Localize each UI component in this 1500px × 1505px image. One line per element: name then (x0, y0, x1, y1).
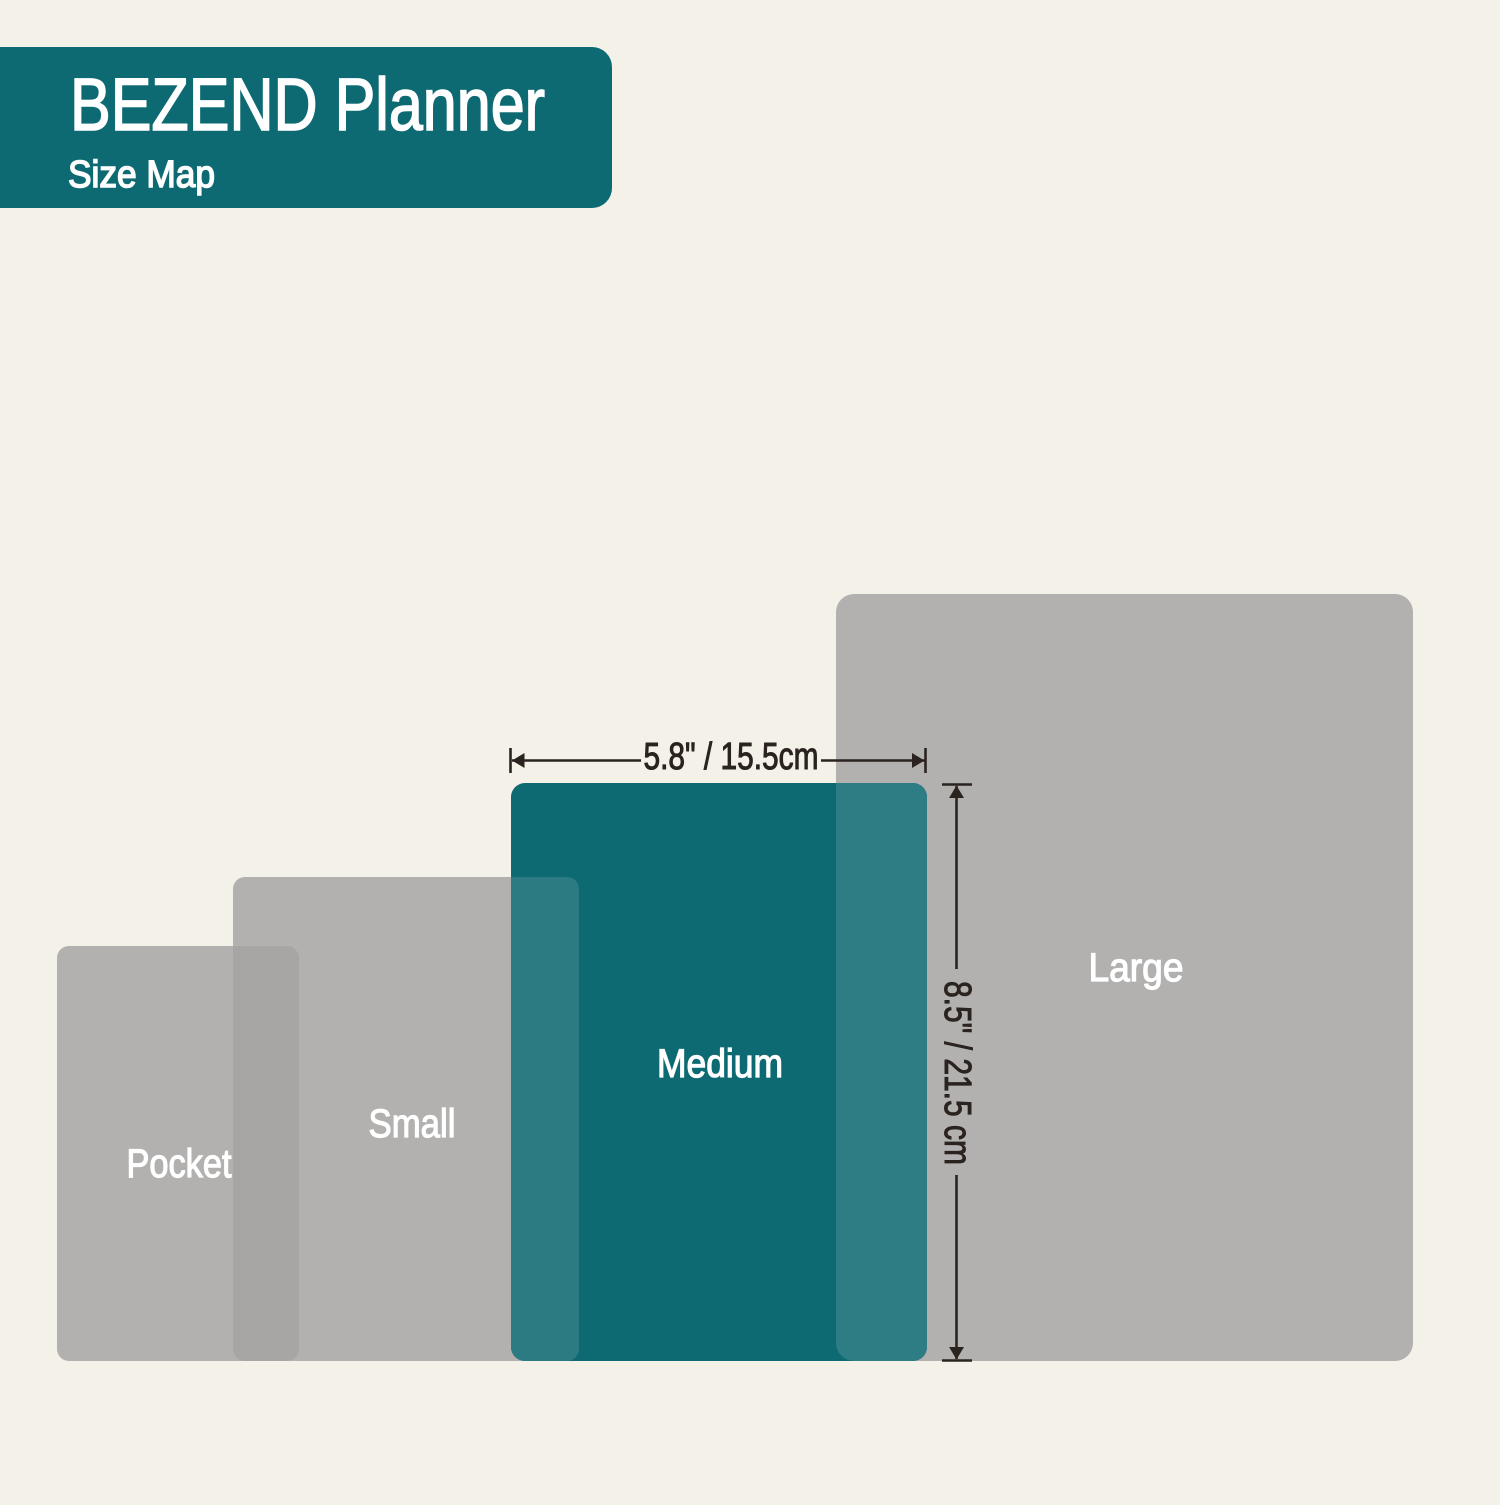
svg-text:BEZEND Planner: BEZEND Planner (70, 63, 545, 146)
svg-text:Medium: Medium (657, 1042, 783, 1086)
svg-text:8.5" / 21.5 cm: 8.5" / 21.5 cm (936, 981, 978, 1165)
svg-text:Pocket: Pocket (127, 1142, 232, 1186)
svg-text:Size Map: Size Map (68, 154, 215, 196)
svg-text:5.8" / 15.5cm: 5.8" / 15.5cm (644, 736, 819, 778)
svg-text:Large: Large (1089, 946, 1184, 990)
svg-text:Small: Small (369, 1102, 456, 1146)
